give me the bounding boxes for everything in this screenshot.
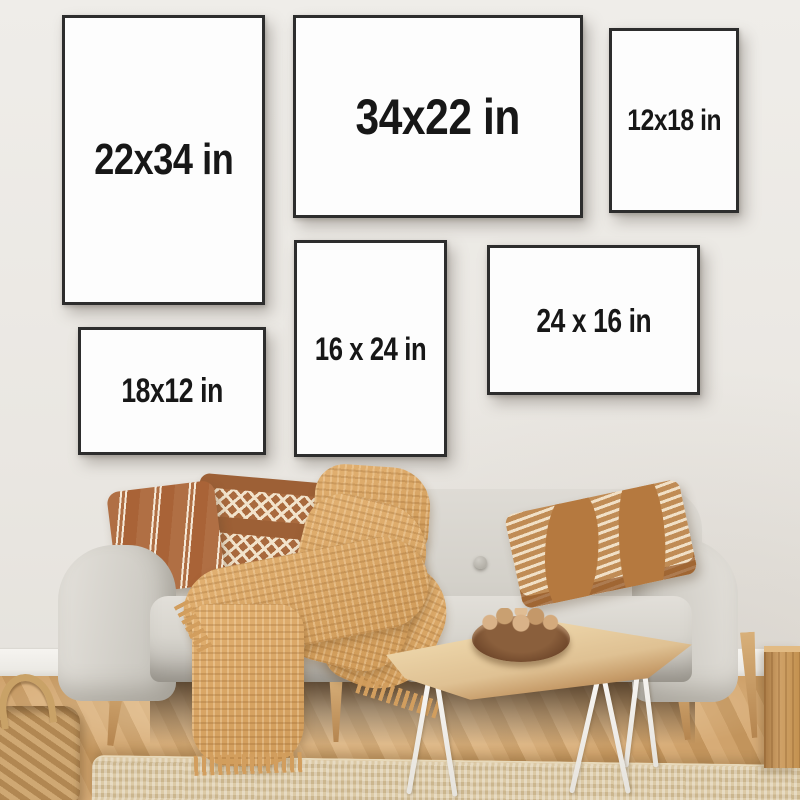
sofa-tuft-button [474,556,487,569]
poster-frame-22x34: 22x34 in [62,15,265,305]
poster-frame-34x22: 34x22 in [293,15,583,218]
frame-size-label: 34x22 in [356,92,520,142]
poster-frame-18x12: 18x12 in [78,327,266,455]
frame-size-label: 18x12 in [121,374,223,408]
woven-basket [0,706,80,800]
diamond-band [202,487,320,525]
living-room-photo: 22x34 in 34x22 in 12x18 in 18x12 in 16 x… [0,0,800,800]
throw-blanket-hanging [192,604,304,766]
blanket-fringe [194,752,303,776]
pillow-motif [543,490,601,610]
poster-frame-12x18: 12x18 in [609,28,739,213]
poster-frame-16x24: 16 x 24 in [294,240,447,457]
nut-bowl [472,616,570,662]
frame-size-label: 24 x 16 in [536,304,651,337]
poster-frame-24x16: 24 x 16 in [487,245,700,395]
frame-size-label: 12x18 in [627,106,721,136]
frame-size-label: 16 x 24 in [315,333,426,365]
walnuts [480,608,562,634]
frame-size-label: 22x34 in [94,138,233,182]
wood-block [764,646,800,768]
